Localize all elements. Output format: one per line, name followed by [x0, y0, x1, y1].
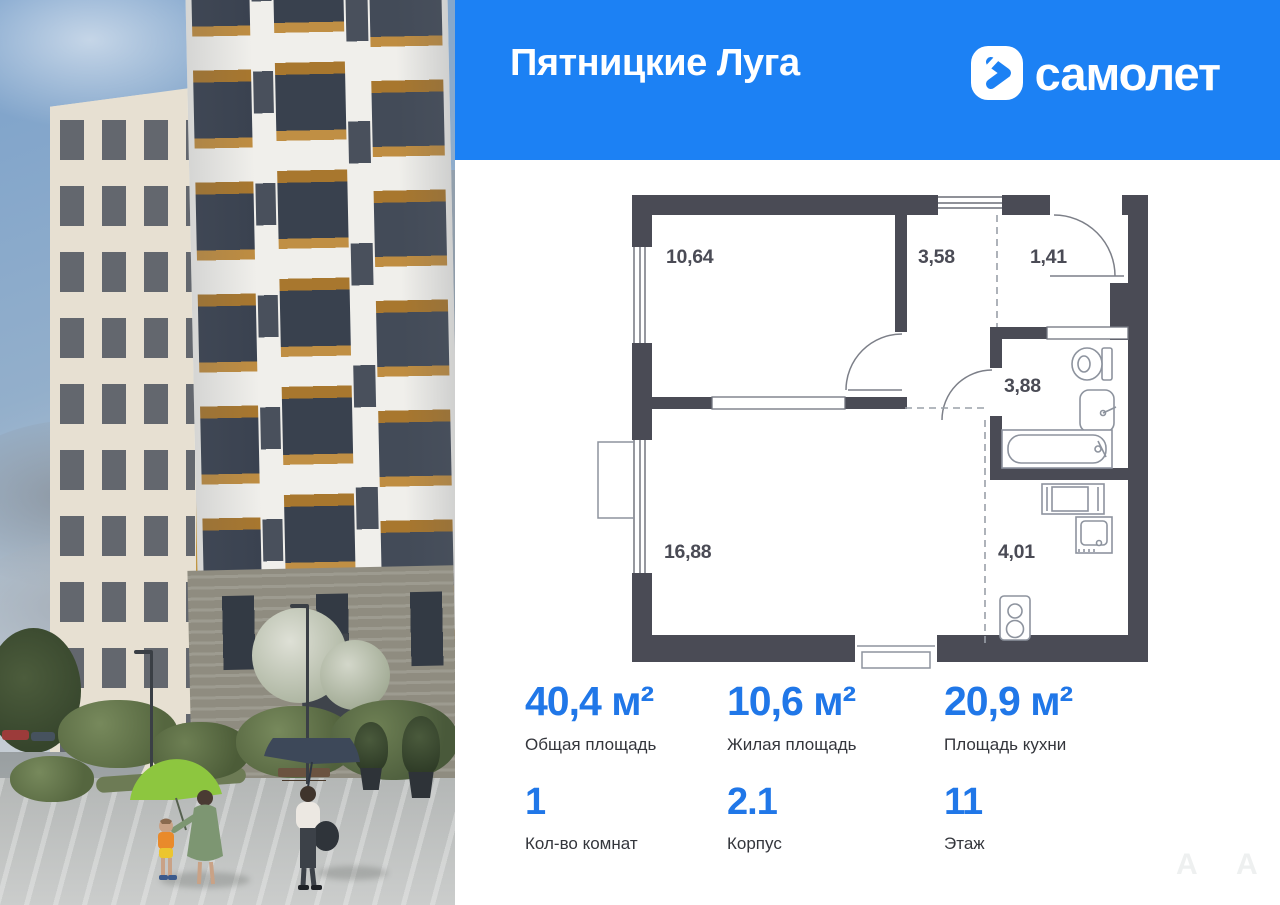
top-window — [938, 197, 1002, 208]
mother-leg — [199, 862, 200, 884]
watermark-letter: А — [1176, 848, 1198, 882]
woman-shoe — [311, 885, 322, 890]
building-photo — [0, 0, 455, 905]
woman-shoe — [298, 885, 309, 890]
listing-card: Пятницкие Луга самолет — [0, 0, 1280, 905]
stat-label: Корпус — [727, 834, 937, 854]
balcony-door — [857, 646, 935, 668]
parked-car — [2, 730, 29, 740]
stat-label: Общая площадь — [525, 735, 735, 755]
stat-value: 20,9 м² — [944, 681, 1154, 722]
watermark-letter: А — [1236, 848, 1258, 882]
brand-logo: самолет — [971, 46, 1220, 100]
woman-head — [300, 786, 316, 802]
stat-label: Площадь кухни — [944, 735, 1154, 755]
mother-dress — [187, 805, 223, 862]
child-shoe — [159, 875, 168, 880]
stat-kitchen-area: 20,9 м² Площадь кухни — [944, 681, 1154, 755]
stat-living-area: 10,6 м² Жилая площадь — [727, 681, 937, 755]
handbag — [313, 821, 339, 851]
door-arcs — [846, 215, 1124, 420]
header: Пятницкие Луга самолет — [455, 0, 1280, 160]
zone-dividers — [905, 215, 997, 648]
stat-total-area: 40,4 м² Общая площадь — [525, 681, 735, 755]
stat-value: 40,4 м² — [525, 681, 735, 722]
room-area-label: 16,88 — [664, 541, 712, 563]
child-shoe — [168, 875, 177, 880]
potted-plant — [402, 716, 440, 776]
stat-value: 10,6 м² — [727, 681, 937, 722]
navy-umbrella — [264, 738, 360, 764]
woman-blouse — [296, 802, 320, 830]
project-title: Пятницкие Луга — [510, 42, 800, 85]
toilet-tank — [1102, 348, 1112, 380]
child-hair — [160, 819, 172, 825]
room-area-label: 1,41 — [1030, 246, 1067, 268]
mother-head — [197, 790, 213, 806]
woman-leg — [303, 868, 304, 886]
room-area-label: 10,64 — [666, 246, 714, 268]
brand-wordmark: самолет — [1035, 50, 1220, 97]
bathroom-fixtures — [1002, 348, 1116, 468]
living-window — [634, 440, 645, 573]
blossom-tree — [320, 640, 390, 710]
balcony-outline — [598, 442, 634, 518]
samolet-logo-icon — [971, 46, 1023, 100]
room-area-label: 3,88 — [1004, 375, 1041, 397]
stat-floor: 11 Этаж — [944, 783, 1154, 854]
stat-value: 11 — [944, 783, 1154, 821]
plan-partitions — [712, 327, 1128, 409]
woman-leg — [312, 868, 314, 886]
child-shirt — [158, 832, 174, 849]
room-area-label: 4,01 — [998, 541, 1035, 563]
stat-label: Кол-во комнат — [525, 834, 735, 854]
stat-rooms-count: 1 Кол-во комнат — [525, 783, 735, 854]
stat-value: 1 — [525, 783, 735, 821]
floor-plan: 10,64 3,58 1,41 3,88 16,88 4,01 — [596, 193, 1154, 672]
stat-label: Этаж — [944, 834, 1154, 854]
stat-value: 2.1 — [727, 783, 937, 821]
bush — [10, 756, 94, 802]
stat-label: Жилая площадь — [727, 735, 937, 755]
mother-leg — [211, 862, 213, 884]
people-scene — [112, 738, 380, 900]
room-area-label: 3,58 — [918, 246, 955, 268]
woman-trousers — [300, 828, 316, 868]
stat-building: 2.1 Корпус — [727, 783, 937, 854]
parked-car — [31, 732, 55, 741]
bedroom-window — [634, 247, 645, 343]
child-shorts — [159, 848, 173, 858]
